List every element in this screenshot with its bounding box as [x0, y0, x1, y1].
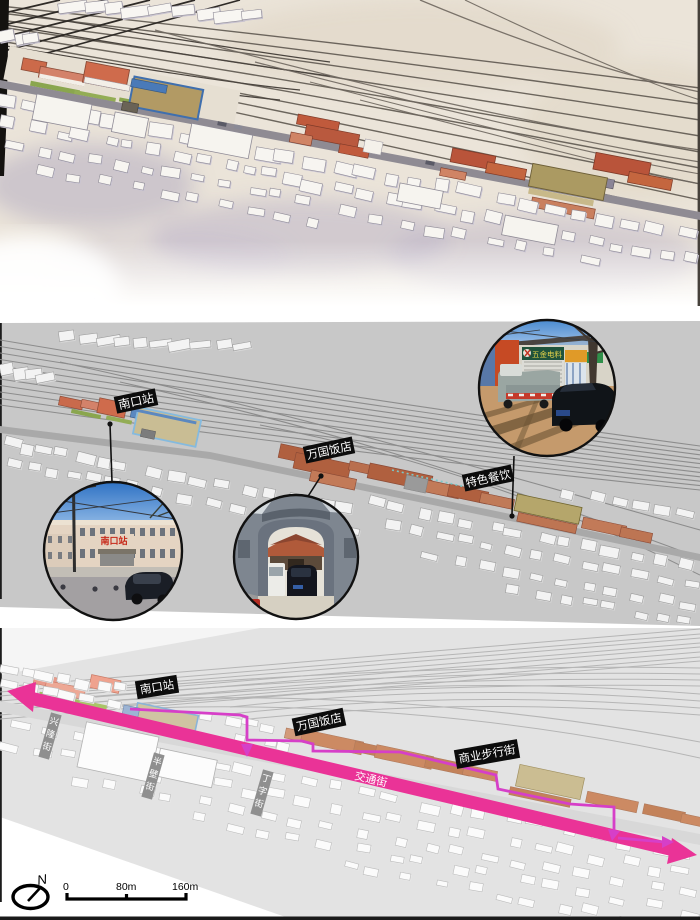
svg-text:80m: 80m	[116, 881, 137, 893]
svg-text:南口站: 南口站	[100, 535, 127, 546]
svg-text:160m: 160m	[172, 881, 199, 893]
svg-text:0: 0	[63, 881, 69, 893]
svg-text:五金电料: 五金电料	[532, 349, 562, 359]
